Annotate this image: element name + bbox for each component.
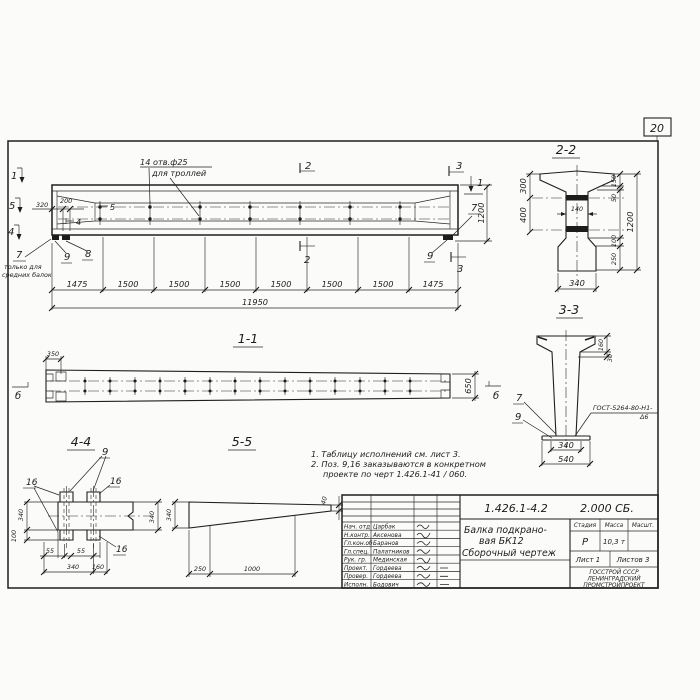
dim-250: 250 (194, 565, 206, 573)
col-stage-header: Стадия (574, 523, 597, 529)
dim-40: 40 (319, 496, 329, 506)
org-line-3: ПРОМСТРОЙПРОЕКТ (583, 582, 645, 589)
sheet-number: 20 (650, 122, 664, 135)
row-name: Баранов (373, 541, 399, 547)
doc-code: 2.000 СБ. (580, 502, 634, 515)
row-role: Гл.кон.об (344, 541, 373, 547)
section-3-3: 3-3 160 30 7 9 ГОСТ-5264-80-Н1- Δ6 340 5… (512, 302, 658, 467)
section-marks-left: 1 5 4 (8, 168, 25, 240)
drawing-canvas: 20 14 отв.ф25 для троллей 1 5 4 (0, 0, 700, 700)
callout-9-33: 9 (515, 412, 521, 423)
dim-350: 350 (47, 350, 59, 358)
dim-100-44: 100 (10, 530, 18, 542)
row-name: Мединская (373, 558, 407, 564)
holes-label-line1: 14 отв.ф25 (140, 157, 188, 167)
sheets-value: Листов 3 (616, 556, 650, 564)
bottom-dim-chain: 1475 1500 1500 1500 1500 1500 1500 1475 … (49, 237, 461, 311)
callout-9-44: 9 (102, 447, 108, 458)
title-block: 1.426.1-4.2 2.000 СБ. Балка подкрано- ва… (342, 495, 658, 589)
drawing-title-2: вая БК12 (479, 536, 524, 547)
section-4-4-title: 4-4 (71, 434, 91, 449)
callouts-right: 7 9 (424, 203, 480, 262)
dim-seg-5: 1500 (322, 279, 343, 289)
note-line-3: проекте по черт 1.426.1-41 / 060. (323, 469, 467, 479)
callout-7-33: 7 (516, 393, 523, 404)
dim-250: 250 (610, 253, 618, 265)
row-name: Бодович (373, 582, 399, 588)
dim-340-left-44: 340 (17, 509, 25, 521)
cut-mark-b-right: б (493, 390, 499, 402)
dim-340-right-44: 340 (148, 511, 156, 523)
dim-140: 140 (571, 205, 583, 213)
plan-centerlines (50, 381, 446, 391)
mark-4-left: 4 (8, 227, 14, 238)
weld-label-2: Δ6 (639, 413, 648, 421)
weld-band-upper (567, 195, 588, 201)
dim-30: 30 (606, 354, 614, 362)
dim-340-22: 340 (569, 278, 585, 288)
plan-end-details (46, 372, 450, 401)
weld-label-1: ГОСТ-5264-80-Н1- (593, 404, 653, 412)
dim-seg-6: 1500 (373, 279, 394, 289)
row-role: Н.контр. (344, 533, 370, 539)
mark-5-inner: 5 (110, 202, 115, 212)
signature-rows: Нач. отд Царбак Н.контр. Аксенова Гл.кон… (344, 525, 410, 589)
dim-650: 650 (463, 378, 473, 394)
callouts-left: 7 только для средних балок 9 8 (2, 239, 93, 279)
notes: 1. Таблицу исполнений см. лист 3. 2. Поз… (311, 449, 486, 479)
section-4-4: 4-4 9 16 16 16 340 100 340 55 55 340 160 (10, 434, 162, 575)
dim-total: 11950 (242, 297, 268, 307)
note-line-2: 2. Поз. 9,16 заказываются в конкретном (311, 459, 486, 469)
row-name: Гордеева (373, 566, 402, 572)
row-role: Исполн. (344, 582, 368, 588)
row-name: Палатников (373, 549, 410, 555)
section-1-1: 1-1 350 650 б б (12, 331, 501, 402)
dim-200: 200 (60, 197, 72, 205)
drawing-title-3: Сборочный чертеж (462, 548, 557, 559)
dim-1200-main: 1200 (476, 203, 486, 224)
dim-340-bottom-44: 340 (67, 563, 79, 571)
callout-9-left: 9 (64, 252, 70, 263)
drawing-border (8, 141, 658, 588)
holes-label-line2: для троллей (151, 168, 207, 178)
dim-340-55: 340 (165, 509, 173, 521)
row-role: Провер. (344, 574, 368, 580)
weld-band-lower (567, 226, 588, 232)
mark-1-right: 1 (477, 178, 483, 189)
main-elevation-view: 14 отв.ф25 для троллей 1 5 4 320 200 5 4… (2, 157, 492, 311)
row-role: Нач. отд (344, 525, 370, 531)
drawing-title-1: Балка подкрано- (464, 525, 547, 536)
sheet-value: Лист 1 (575, 556, 600, 564)
dim-1200-22: 1200 (625, 212, 635, 233)
mark-2-top: 2 (305, 161, 311, 172)
col-scale-header: Масшт. (632, 523, 654, 529)
dim-540: 540 (558, 454, 574, 464)
mark-3-top: 3 (456, 161, 462, 172)
plan-hole-ticks (85, 377, 410, 395)
section-2-2: 2-2 300 400 150 50 100 250 1200 140 340 (518, 142, 641, 292)
mark-1-left: 1 (11, 171, 17, 182)
row-role: Гл.спец. (344, 549, 369, 555)
dim-seg-0: 1475 (67, 279, 88, 289)
callout-7-note-2: средних балок (2, 271, 52, 279)
dim-55-b: 55 (77, 547, 85, 555)
beam-plan-outline (46, 370, 450, 402)
mass-value: 10,3 т (603, 538, 626, 546)
callout-7-note-1: только для (4, 263, 42, 271)
dim-340-33: 340 (558, 440, 574, 450)
stage-value: Р (582, 537, 589, 548)
dim-320: 320 (36, 201, 48, 209)
row-name: Гордеева (373, 574, 402, 580)
callout-16-b: 16 (110, 477, 122, 487)
dim-seg-4: 1500 (271, 279, 292, 289)
org-line-1: ГОССТРОЙ СССР (589, 569, 639, 576)
dim-50: 50 (610, 194, 618, 202)
col-mass-header: Масса (605, 523, 624, 529)
signature-scribbles (417, 525, 449, 586)
dim-160: 160 (597, 339, 605, 351)
dim-55-a: 55 (46, 547, 54, 555)
doc-number: 1.426.1-4.2 (484, 502, 547, 515)
row-name: Царбак (373, 525, 396, 531)
section-3-3-title: 3-3 (559, 302, 579, 317)
sheet-frame: 20 (8, 118, 671, 588)
taper-plate-outline (189, 502, 331, 528)
dim-160-44: 160 (92, 563, 104, 571)
end-detail-dims: 320 200 5 4 (32, 197, 115, 231)
dim-400: 400 (518, 207, 528, 223)
dim-seg-2: 1500 (169, 279, 190, 289)
callout-7-right: 7 (471, 203, 478, 214)
plan-holes (84, 380, 412, 393)
cut-mark-b-left: б (15, 390, 21, 402)
mark-5-left: 5 (9, 201, 15, 212)
dim-seg-7: 1475 (423, 279, 444, 289)
dim-1000: 1000 (244, 565, 260, 573)
row-role: Рук. гр. (344, 558, 367, 564)
dim-seg-1: 1500 (118, 279, 139, 289)
section-1-1-title: 1-1 (238, 331, 258, 346)
dim-300: 300 (518, 178, 528, 194)
note-line-1: 1. Таблицу исполнений см. лист 3. (311, 449, 461, 459)
section-2-2-title: 2-2 (556, 142, 576, 157)
section-5-5-title: 5-5 (232, 434, 252, 449)
drawing-sheet: 20 14 отв.ф25 для троллей 1 5 4 (0, 0, 700, 700)
callout-16-c: 16 (116, 545, 128, 555)
dim-100-22: 100 (610, 235, 618, 247)
dim-seg-3: 1500 (220, 279, 241, 289)
hole-ticks (100, 201, 400, 225)
section-marks-2: 2 2 (300, 161, 315, 266)
row-role: Проект. (344, 566, 368, 572)
callout-7-left: 7 (16, 250, 23, 261)
org-line-2: ЛЕНИНГРАДСКИЙ (586, 576, 641, 583)
dim-150: 150 (610, 175, 618, 187)
mark-4-inner: 4 (76, 217, 81, 227)
hole-centerlines (58, 207, 452, 219)
row-name: Аксенова (372, 533, 402, 539)
